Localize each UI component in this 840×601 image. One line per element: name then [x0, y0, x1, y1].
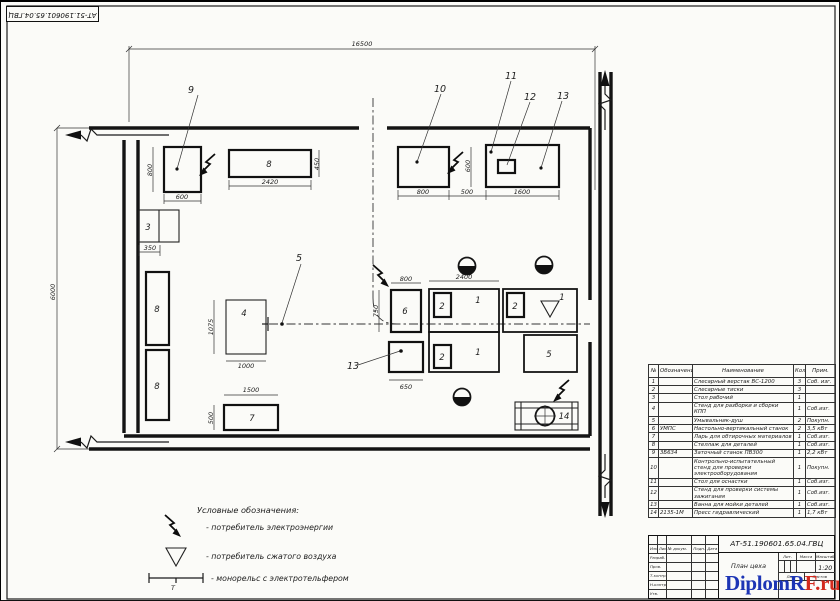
dim-label: 2400 [456, 273, 473, 281]
table-cell: Слесарный верстак ВС-1200 [693, 378, 794, 386]
table-cell: Стенд для проверки системы зажигания [693, 486, 794, 500]
table-cell: 1,7 кВт [806, 509, 836, 517]
table-cell [806, 394, 836, 402]
table-cell [659, 486, 693, 500]
table-cell: Контрольно-испытательный стенд для прове… [693, 458, 794, 479]
equipment-item-13 [389, 342, 423, 372]
legend-monorail-t: Т [171, 584, 176, 592]
table-cell: 10 [649, 458, 659, 479]
dim-label: 800 [146, 164, 154, 176]
table-cell: Соб. изг. [806, 378, 836, 386]
table-cell: 3 [794, 378, 806, 386]
dim-label: 750 [372, 305, 380, 317]
dim-label: 650 [400, 383, 412, 391]
tb-nkontr: Н.контр. [649, 581, 667, 589]
item-label: 7 [249, 414, 255, 424]
table-row: 14 2135-1М Пресс гидравлический 1 1,7 кВ… [649, 509, 836, 517]
tb-date: Дата [706, 545, 718, 553]
table-cell: Покупн. [806, 417, 836, 425]
table-cell: Стеллаж для деталей [693, 441, 794, 449]
table-cell: Умывальник-душ [693, 417, 794, 425]
table-cell: Пресс гидравлический [693, 509, 794, 517]
monorail-icon: Т [149, 573, 203, 592]
monorail-line [262, 98, 590, 331]
table-row: 4 Стенд для разборки и сборки КПП 1 Соб.… [649, 402, 836, 416]
table-cell: 5 [649, 417, 659, 425]
table-cell: 3Б634 [659, 449, 693, 457]
item-label: 8 [154, 305, 160, 315]
table-row: 6 УМПС Настольно-вертикальный станок 2 3… [649, 425, 836, 433]
table-cell: Покупн. [806, 458, 836, 479]
tb-scale-header: Масштаб [816, 553, 835, 561]
table-cell: 3 [794, 386, 806, 394]
table-cell: 3,5 кВт [806, 425, 836, 433]
item-label: 6 [402, 307, 408, 317]
table-cell: 6 [649, 425, 659, 433]
air-consumer-icon [541, 301, 559, 317]
dim-label: 350 [144, 244, 156, 252]
callout-label: 12 [524, 92, 536, 103]
table-row: 3 Стол рабочий 1 [649, 394, 836, 402]
electric-consumer-icon [165, 515, 181, 537]
item-label: 2 [512, 302, 517, 312]
table-header-cell: Кол [794, 365, 806, 378]
electric-consumer-icon [373, 265, 389, 287]
table-cell: УМПС [659, 425, 693, 433]
dim-label: 16500 [352, 40, 373, 48]
dim-label: 500 [207, 412, 215, 424]
table-header-cell: Обозначение [659, 365, 693, 378]
table-cell: Соб.изг. [806, 433, 836, 441]
table-cell: 7 [649, 433, 659, 441]
table-cell: 1 [794, 509, 806, 517]
dim-label: 600 [176, 193, 188, 201]
table-cell: 2 [794, 417, 806, 425]
table-row: 8 Стеллаж для деталей 1 Соб.изг. [649, 441, 836, 449]
callouts: 9 10 11 12 13 5 13 [175, 71, 569, 372]
tb-utv: Утв. [649, 590, 667, 598]
table-row: 11 Стол для оснастки 1 Соб.изг. [649, 478, 836, 486]
table-header-cell: Наименование [693, 365, 794, 378]
dimensions: 16500 6000 600 800 2420 450 350 10 [49, 40, 598, 452]
callout-label: 5 [296, 253, 302, 264]
table-cell: 1 [794, 486, 806, 500]
column-symbol [459, 258, 476, 275]
tb-podp: Подп. [692, 545, 706, 553]
table-cell: 4 [649, 402, 659, 416]
column-symbol [536, 257, 553, 274]
legend-electric-label: - потребитель электроэнергии [206, 523, 333, 532]
table-header-cell: № [649, 365, 659, 378]
equipment-item-9 [164, 147, 201, 192]
watermark-red: F.ru [805, 571, 840, 595]
table-cell: Стол рабочий [693, 394, 794, 402]
table-cell [659, 386, 693, 394]
callout-label: 13 [347, 361, 359, 372]
callout-label: 10 [434, 84, 446, 95]
table-cell: 1 [794, 449, 806, 457]
column-symbol [454, 389, 471, 406]
table-cell: 1 [794, 441, 806, 449]
table-cell: Стенд для разборки и сборки КПП [693, 402, 794, 416]
dim-label: 1000 [238, 362, 255, 370]
table-cell [659, 394, 693, 402]
item-label: 3 [145, 223, 150, 233]
watermark-blue: DiplomR [725, 571, 805, 595]
table-header-cell: Прим. [806, 365, 836, 378]
table-cell: Соб.изг. [806, 402, 836, 416]
table-row: 2 Слесарные тиски 3 [649, 386, 836, 394]
tb-lit-header: Лит. [779, 553, 797, 561]
title-block-revision-grid: Изм. Лист № докум. Подп. Дата Разраб. Пр… [649, 536, 719, 598]
table-cell: 1 [649, 378, 659, 386]
gate-arrow-top-left [65, 129, 169, 141]
table-cell: 2,2 кВт [806, 449, 836, 457]
table-cell [659, 441, 693, 449]
table-cell: 2135-1М [659, 509, 693, 517]
table-cell: 9 [649, 449, 659, 457]
item-label: 1 [559, 293, 564, 303]
table-cell: 1 [794, 458, 806, 479]
tb-razrab: Разраб. [649, 554, 667, 562]
watermark: DiplomRF.ru [725, 571, 840, 596]
table-cell: 1 [794, 478, 806, 486]
table-cell: 13 [649, 501, 659, 509]
item-label: 2 [439, 302, 444, 312]
table-cell [659, 478, 693, 486]
table-cell [659, 417, 693, 425]
table-row: 12 Стенд для проверки системы зажигания … [649, 486, 836, 500]
item-label: 1 [475, 348, 480, 358]
item-label: 8 [154, 382, 160, 392]
tb-prov: Пров. [649, 563, 667, 571]
tb-tkontr: Т.контр. [649, 572, 667, 580]
table-cell: Ванна для мойки деталей [693, 501, 794, 509]
table-cell: Соб.изг. [806, 478, 836, 486]
electric-consumer-icon [553, 380, 569, 402]
equipment-table: № Обозначение Наименование Кол Прим. 1 С… [648, 364, 836, 518]
air-consumer-icon [166, 548, 186, 566]
item-label: 1 [475, 296, 480, 306]
table-cell: 1 [794, 394, 806, 402]
table-cell: 3 [649, 394, 659, 402]
legend-monorail-label: - монорельс с электротельфером [211, 574, 349, 583]
table-row: 13 Ванна для мойки деталей 1 Соб.изг. [649, 501, 836, 509]
table-row: 7 Ларь для обтирочных материалов 1 Соб.и… [649, 433, 836, 441]
table-cell: 12 [649, 486, 659, 500]
dim-label: 500 [461, 188, 473, 196]
dim-label: 600 [464, 160, 472, 172]
document-designation: АТ-51.190601.65.04.ГВЦ [719, 536, 835, 553]
tb-doc: № докум. [667, 545, 693, 553]
item-label: 2 [439, 353, 444, 363]
dim-label: 1600 [514, 188, 531, 196]
dim-label: 800 [400, 275, 412, 283]
equipment-workbench-1b [429, 332, 499, 372]
dim-label: 1500 [243, 386, 260, 394]
table-row: 9 3Б634 Заточный станок ПВ300 1 2,2 кВт [649, 449, 836, 457]
dim-label: 450 [313, 158, 321, 170]
table-cell: 1 [794, 433, 806, 441]
item-label: 8 [266, 160, 272, 170]
legend: Условные обозначения: - потребитель элек… [149, 505, 349, 592]
item-label: 14 [559, 412, 570, 422]
table-row: 5 Умывальник-душ 2 Покупн. [649, 417, 836, 425]
table-cell [659, 458, 693, 479]
dim-label: 800 [417, 188, 429, 196]
equipment-item-10 [398, 147, 449, 187]
table-cell: Слесарные тиски [693, 386, 794, 394]
table-cell: 11 [649, 478, 659, 486]
legend-air-label: - потребитель сжатого воздуха [206, 552, 337, 561]
dim-label: 6000 [49, 284, 57, 301]
tb-list: Лист [658, 545, 667, 553]
callout-label: 11 [505, 71, 517, 82]
table-cell: 2 [649, 386, 659, 394]
table-cell [806, 386, 836, 394]
table-row: 1 Слесарный верстак ВС-1200 3 Соб. изг. [649, 378, 836, 386]
table-cell: 1 [794, 402, 806, 416]
table-cell [659, 433, 693, 441]
table-cell: 1 [794, 501, 806, 509]
item-label: 4 [241, 309, 246, 319]
table-cell: Настольно-вертикальный станок [693, 425, 794, 433]
table-cell: Соб.изг. [806, 501, 836, 509]
dim-label: 2420 [262, 178, 279, 186]
legend-title: Условные обозначения: [197, 505, 299, 515]
table-cell: 2 [794, 425, 806, 433]
table-cell: Ларь для обтирочных материалов [693, 433, 794, 441]
walls [89, 72, 611, 516]
table-header-row: № Обозначение Наименование Кол Прим. [649, 365, 836, 378]
item-label: 5 [546, 350, 551, 360]
callout-label: 9 [188, 85, 194, 96]
drawing-sheet: 8 3 8 8 4 7 6 1 2 1 2 1 2 5 [0, 0, 840, 601]
table-cell [659, 501, 693, 509]
table-cell [659, 378, 693, 386]
equipment-item-12 [498, 160, 515, 173]
table-cell: 14 [649, 509, 659, 517]
gate-arrow-bottom-left [65, 436, 169, 448]
table-cell: Соб.изг. [806, 486, 836, 500]
table-cell: Стол для оснастки [693, 478, 794, 486]
tb-izm: Изм. [649, 545, 658, 553]
table-cell: Соб.изг. [806, 441, 836, 449]
table-cell: 8 [649, 441, 659, 449]
callout-label: 13 [557, 91, 569, 102]
equipment-press-14: 14 [515, 402, 578, 430]
corner-designation-stamp: АТ-51.190601.65.04.ГВЦ [6, 6, 99, 22]
table-row: 10 Контрольно-испытательный стенд для пр… [649, 458, 836, 479]
table-cell [659, 402, 693, 416]
tb-mass-header: Масса [797, 553, 816, 561]
dim-label: 1075 [207, 319, 215, 336]
table-cell: Заточный станок ПВ300 [693, 449, 794, 457]
